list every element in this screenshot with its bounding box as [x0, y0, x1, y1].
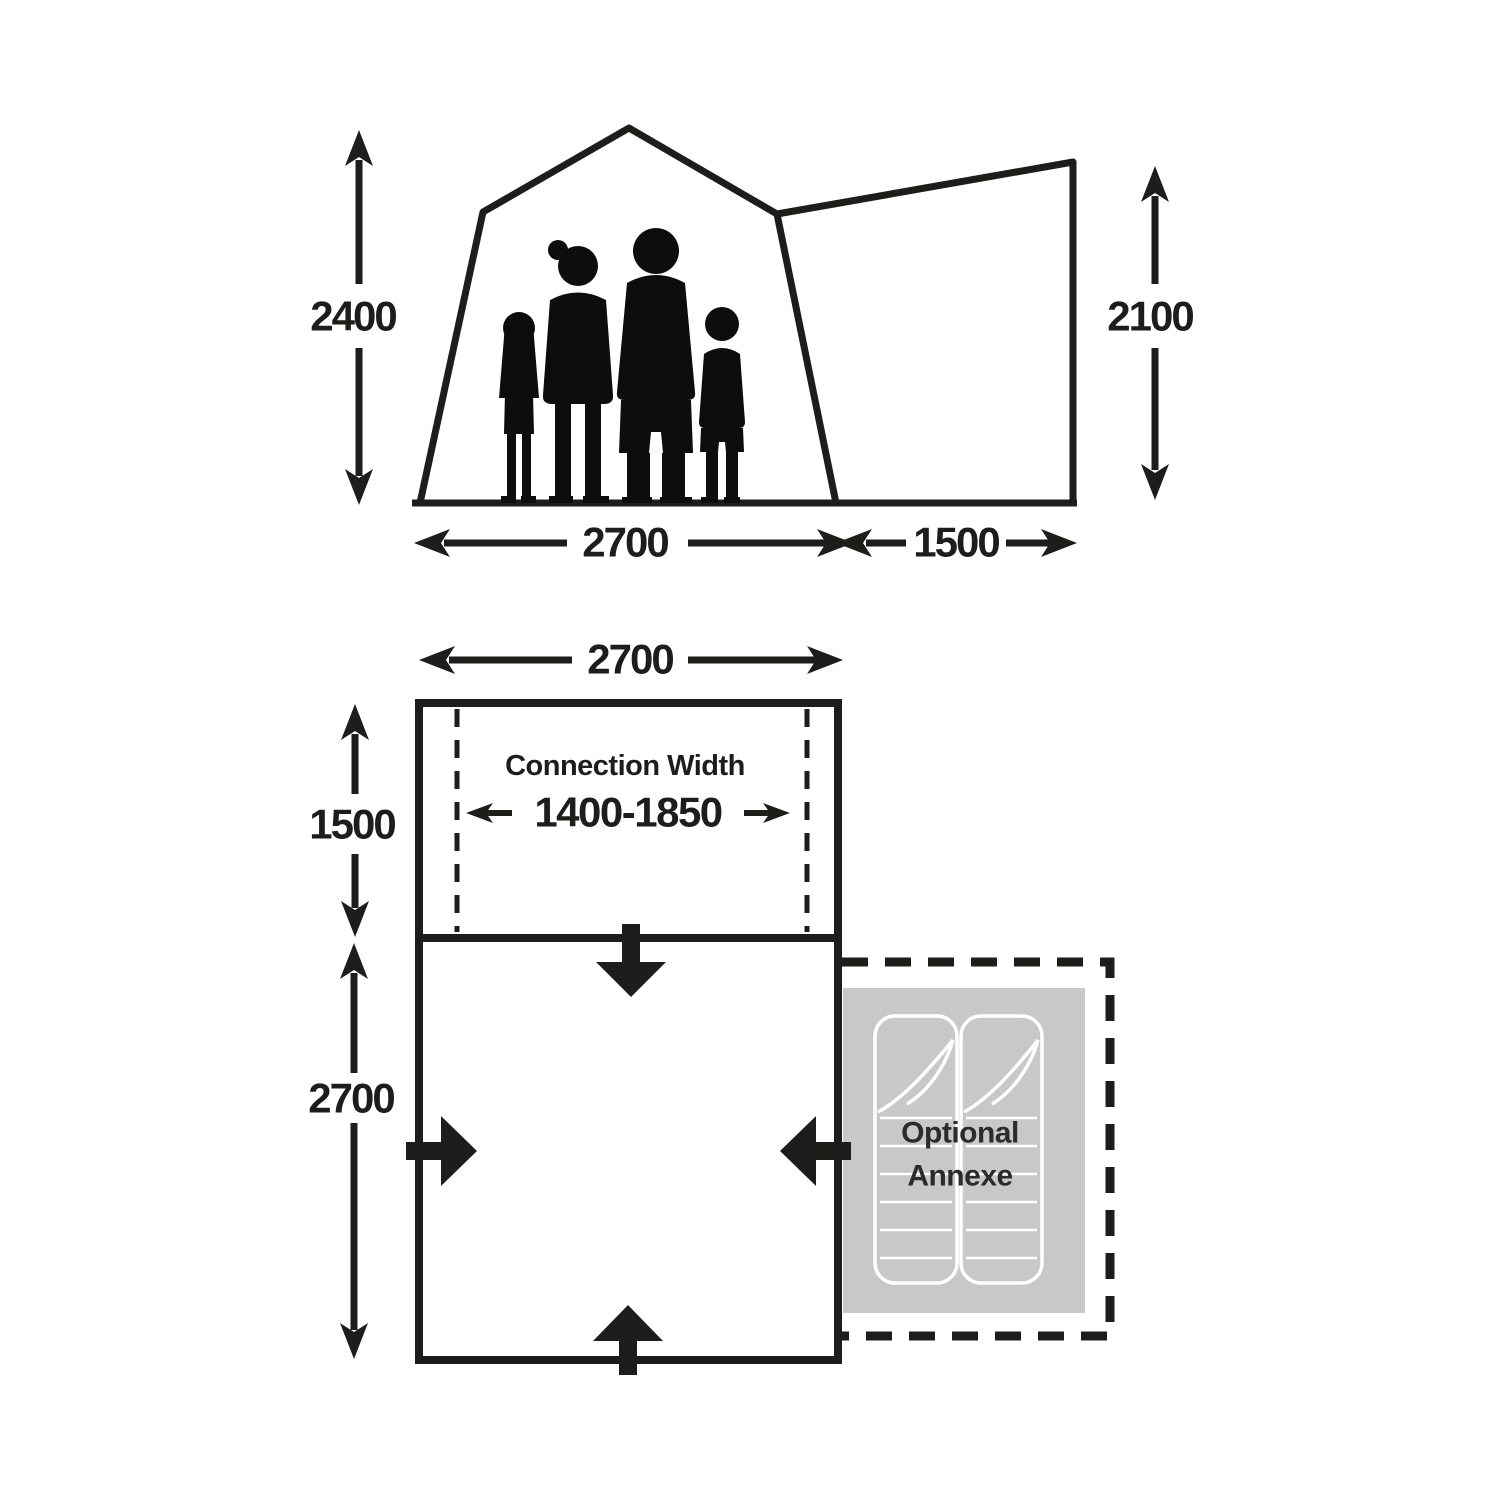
- son-foot: [701, 497, 718, 503]
- dim-elevation-height-right: 2100: [1107, 166, 1193, 500]
- tent-dimension-sheet: 2400: [0, 0, 1500, 1500]
- person-mother: [543, 240, 613, 503]
- daughter-torso: [504, 346, 534, 434]
- door-arrow-shaft: [406, 1142, 441, 1160]
- dim-elevation-height-left: 2400: [310, 130, 396, 505]
- father-foot: [622, 497, 652, 503]
- annexe-label-line1: Optional: [901, 1117, 1019, 1150]
- floorplan-view: Optional Annexe Connection Width 1400-18…: [308, 636, 1110, 1376]
- dim-elevation-width-main: 2700: [414, 519, 853, 566]
- daughter-foot: [501, 496, 516, 503]
- person-daughter: [499, 312, 539, 503]
- connection-width-title: Connection Width: [505, 750, 745, 782]
- dim-plan-main-depth: 2700: [308, 943, 394, 1359]
- elevation-width-main-label: 2700: [582, 519, 668, 566]
- father-leg: [662, 453, 685, 497]
- dim-plan-width-top: 2700: [419, 636, 843, 683]
- elevation-width-side-label: 1500: [913, 519, 999, 566]
- daughter-foot: [521, 496, 536, 503]
- elevation-view: 2400: [310, 128, 1193, 566]
- father-torso: [617, 275, 695, 400]
- optional-annexe: Optional Annexe: [842, 962, 1110, 1336]
- connection-width-range: 1400-1850: [534, 789, 721, 836]
- family-silhouette: [499, 228, 745, 503]
- son-head: [705, 307, 739, 341]
- son-leg: [706, 452, 718, 497]
- tent-side-panel-outline: [777, 162, 1073, 503]
- mother-foot: [549, 496, 573, 503]
- plan-width-top-label: 2700: [587, 636, 673, 683]
- daughter-leg: [522, 434, 531, 503]
- elevation-height-right-label: 2100: [1107, 293, 1193, 340]
- daughter-head: [503, 312, 535, 344]
- mother-leg: [585, 404, 601, 496]
- person-father: [617, 228, 695, 503]
- plan-connection-depth-label: 1500: [309, 801, 395, 848]
- elevation-height-left-label: 2400: [310, 293, 396, 340]
- mother-foot: [583, 496, 609, 503]
- door-arrow-shaft: [816, 1142, 851, 1160]
- father-leg: [627, 453, 650, 497]
- son-torso: [699, 348, 745, 428]
- daughter-leg: [507, 434, 516, 503]
- dim-elevation-width-side: 1500: [836, 519, 1077, 566]
- person-son: [699, 307, 745, 503]
- father-foot: [660, 497, 692, 503]
- door-arrow-shaft: [622, 924, 640, 964]
- father-shorts: [619, 400, 693, 453]
- son-foot: [724, 497, 740, 503]
- plan-main-depth-label: 2700: [308, 1075, 394, 1122]
- annexe-label-line2: Annexe: [907, 1160, 1012, 1193]
- son-leg: [726, 452, 738, 497]
- mother-head: [558, 246, 598, 286]
- dim-plan-connection-depth: 1500: [309, 704, 395, 937]
- mother-torso: [543, 293, 613, 405]
- son-shorts: [700, 428, 744, 452]
- tent-dimensions-diagram: 2400: [0, 0, 1500, 1500]
- father-head: [633, 228, 679, 274]
- annexe-ground-sheet: [843, 988, 1085, 1313]
- mother-leg: [555, 404, 571, 496]
- door-arrow-shaft: [619, 1338, 637, 1375]
